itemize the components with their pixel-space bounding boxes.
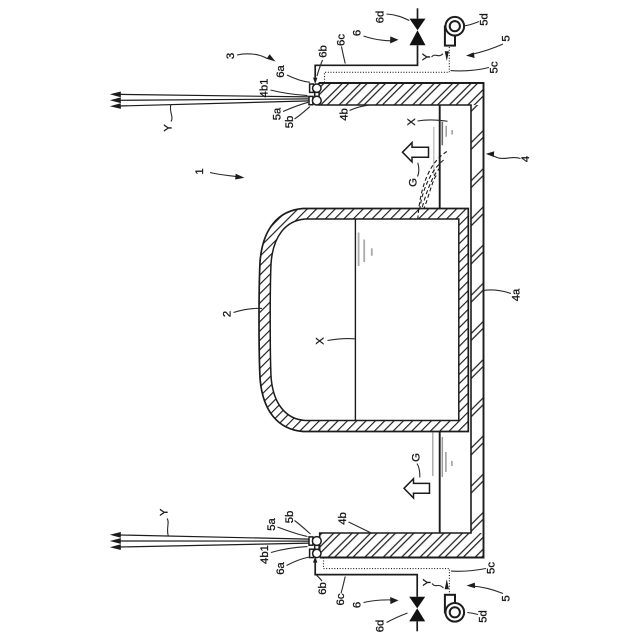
svg-text:6a: 6a — [275, 65, 287, 78]
svg-text:X: X — [315, 337, 327, 345]
svg-text:6d: 6d — [375, 11, 387, 24]
svg-text:4a: 4a — [511, 288, 523, 301]
svg-text:5a: 5a — [272, 107, 284, 120]
svg-text:2: 2 — [222, 311, 234, 317]
svg-text:5c: 5c — [489, 61, 501, 73]
svg-text:5b: 5b — [284, 511, 296, 524]
svg-text:6c: 6c — [335, 593, 347, 605]
svg-text:5c: 5c — [486, 562, 498, 574]
svg-text:6a: 6a — [275, 562, 287, 575]
svg-text:G: G — [408, 178, 420, 187]
svg-text:Y: Y — [421, 53, 433, 61]
svg-text:Y: Y — [159, 508, 171, 516]
svg-text:G: G — [411, 453, 423, 462]
svg-text:1: 1 — [194, 168, 206, 174]
svg-text:5a: 5a — [266, 518, 278, 531]
svg-text:6c: 6c — [336, 34, 348, 46]
svg-text:6: 6 — [352, 30, 364, 36]
svg-text:6d: 6d — [375, 620, 387, 633]
svg-text:5: 5 — [501, 595, 513, 601]
svg-text:Y: Y — [163, 124, 175, 132]
svg-text:Y: Y — [422, 578, 434, 586]
svg-text:X: X — [406, 118, 418, 126]
svg-text:3: 3 — [225, 53, 237, 59]
svg-text:4b: 4b — [339, 108, 351, 121]
svg-text:6: 6 — [352, 602, 364, 608]
svg-text:6b: 6b — [317, 582, 329, 595]
svg-text:5d: 5d — [478, 610, 490, 623]
svg-text:5d: 5d — [479, 13, 491, 26]
svg-text:4: 4 — [520, 156, 532, 162]
svg-text:5: 5 — [501, 35, 513, 41]
svg-text:4b: 4b — [337, 512, 349, 525]
svg-text:4b1: 4b1 — [259, 79, 271, 98]
svg-text:5b: 5b — [284, 116, 296, 129]
svg-text:4b1: 4b1 — [259, 545, 271, 564]
svg-text:6b: 6b — [318, 45, 330, 58]
